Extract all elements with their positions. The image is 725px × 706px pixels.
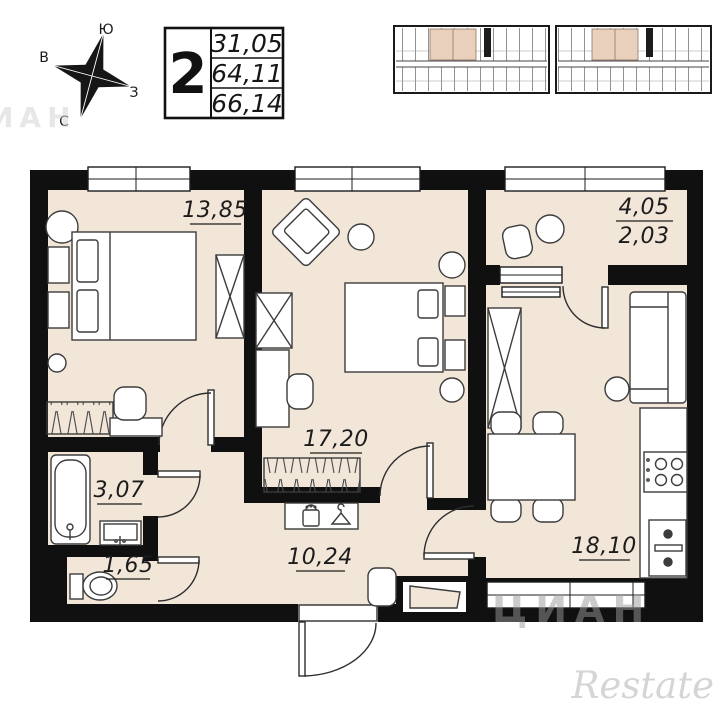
compass-label-south: Ю bbox=[98, 22, 113, 38]
side-table-icon bbox=[605, 377, 629, 401]
loggia-table-icon bbox=[536, 215, 564, 243]
info-value-living: 31,05 bbox=[211, 29, 283, 58]
bathtub-icon bbox=[51, 455, 90, 544]
highlighted-apartment-a bbox=[430, 29, 476, 60]
kitchen-area-label: 18,10 bbox=[571, 534, 636, 559]
wardrobe-x-icon bbox=[256, 293, 292, 348]
header: Ю В З С 2 31,05 64,11 66,14 bbox=[39, 22, 711, 130]
bedroom-area-label: 13,85 bbox=[182, 198, 247, 223]
bathroom-area-label: 3,07 bbox=[94, 478, 145, 503]
wardrobe-x-icon bbox=[216, 255, 244, 338]
sink-icon bbox=[100, 521, 141, 545]
cabinet-icon bbox=[368, 568, 396, 606]
apartment-info-table: 2 31,05 64,11 66,14 bbox=[165, 28, 283, 118]
shoe-cabinet-icon bbox=[403, 582, 466, 612]
room-count: 2 bbox=[169, 42, 208, 107]
entrance-door bbox=[299, 605, 377, 676]
floor-plan-image: Ю В З С 2 31,05 64,11 66,14 bbox=[0, 0, 725, 706]
sink-unit-icon bbox=[649, 520, 686, 576]
highlighted-apartment-b bbox=[592, 29, 638, 60]
loggia-window bbox=[505, 167, 665, 191]
desk-icon bbox=[110, 418, 162, 436]
kitchen-counter bbox=[640, 408, 687, 578]
pouf-icon bbox=[440, 378, 464, 402]
chair-icon bbox=[114, 387, 146, 420]
wardrobe-hatched-icon bbox=[264, 458, 360, 492]
plant-icon bbox=[439, 252, 465, 278]
compass-label-west: З bbox=[130, 85, 139, 101]
stool-icon bbox=[48, 354, 66, 372]
hallway-area-label: 10,24 bbox=[287, 545, 352, 570]
stove-icon bbox=[644, 452, 687, 492]
loggia-reduced-area-label: 2,03 bbox=[619, 224, 670, 249]
info-value-area: 64,11 bbox=[211, 59, 283, 88]
watermark-cian-tile: ЦИАН bbox=[0, 101, 77, 134]
compass-label-east: В bbox=[39, 50, 49, 66]
wardrobe-x-icon bbox=[488, 308, 521, 428]
info-value-total: 66,14 bbox=[211, 89, 283, 118]
loggia-area-label: 4,05 bbox=[619, 195, 670, 220]
desk-icon bbox=[256, 350, 289, 427]
loggia-kitchen-window bbox=[500, 267, 562, 297]
room2-area-label: 17,20 bbox=[303, 427, 368, 452]
room2-window bbox=[295, 167, 420, 191]
hallway-shelf bbox=[285, 503, 358, 529]
building-plan-thumbnail bbox=[394, 26, 711, 93]
wc-area-label: 1,65 bbox=[103, 553, 154, 578]
watermark-restate: Restate bbox=[571, 664, 714, 706]
sofa-icon bbox=[630, 292, 686, 403]
bedroom-window bbox=[88, 167, 190, 191]
side-table-icon bbox=[348, 224, 374, 250]
chair-icon bbox=[287, 374, 313, 409]
floorplan-page: Ю В З С 2 31,05 64,11 66,14 bbox=[0, 0, 725, 706]
watermark-cian: ЦИАН bbox=[492, 587, 652, 631]
wardrobe-hatched-icon bbox=[47, 402, 113, 434]
